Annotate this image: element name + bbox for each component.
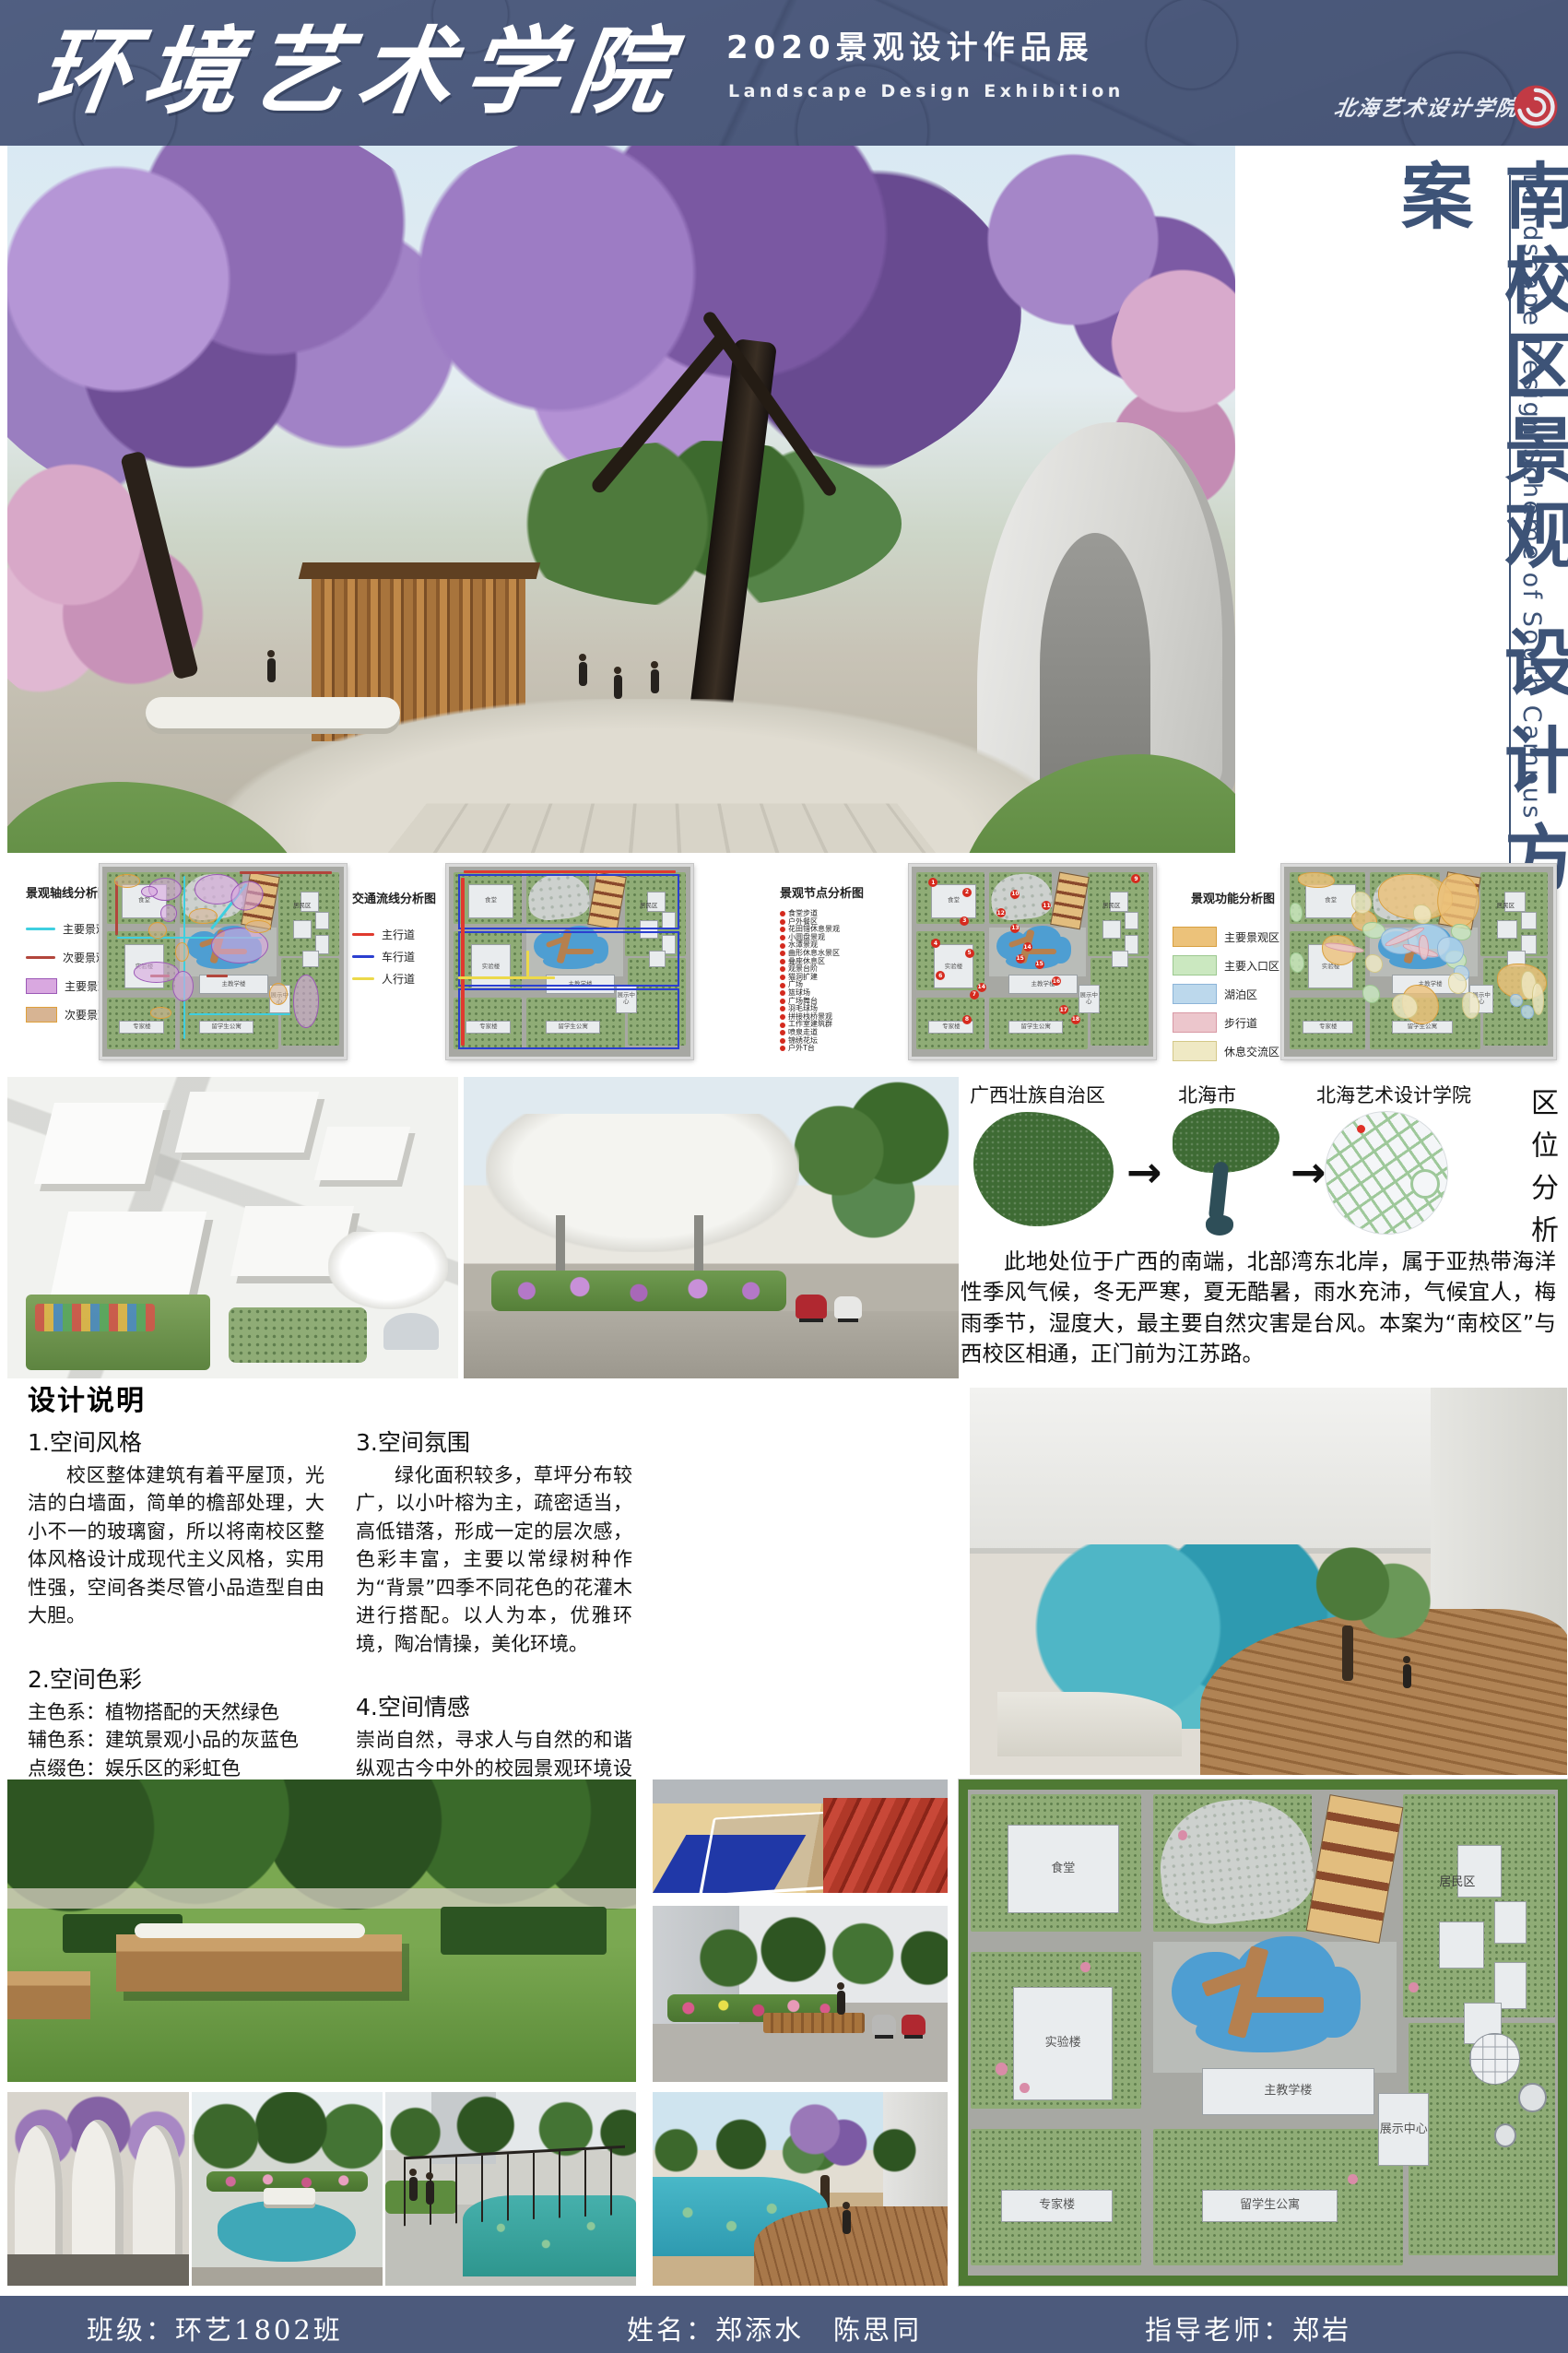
walkway-zone [1419, 935, 1429, 960]
garden-pond-render [192, 2092, 383, 2286]
footer-class: 班级：环艺1802班 [87, 2309, 343, 2347]
building-main_teaching: 主教学楼 [1202, 2068, 1374, 2115]
exhibition-title-en: Landscape Design Exhibition [728, 81, 1125, 101]
legend-swatch [26, 1007, 57, 1023]
red-dot-icon [780, 1006, 785, 1011]
pedestrian-route [458, 976, 555, 979]
residential-building [1112, 951, 1128, 967]
legend-label: 休息交流区 [1224, 1044, 1279, 1059]
building-lab: 实验楼 [1013, 1987, 1113, 2100]
footer-names: 姓名：郑添水 陈思同 [627, 2309, 922, 2347]
traffic-diagram-legend: 交通流线分析图 主行道车行道人行道 [352, 889, 454, 993]
legend-label: 车行道 [382, 949, 415, 964]
vehicle-route [458, 988, 679, 1049]
entrance-zone [1362, 985, 1381, 1004]
rest-zone [1413, 905, 1432, 924]
building-exhibition_center: 展示中心 [1079, 985, 1100, 1013]
legend-swatch [1173, 955, 1217, 975]
secondary-node-ellipse [189, 908, 218, 923]
residential-building [1494, 1901, 1527, 1944]
location-step-beihai-label: 北海市 [1178, 1081, 1236, 1108]
red-dot-icon [780, 983, 785, 988]
lake-zone [1510, 994, 1523, 1007]
red-dot-icon [780, 959, 785, 964]
traffic-analysis-map: 食堂实验楼主教学楼专家楼留学生公寓展示中心居民区 [446, 864, 693, 1059]
red-dot-icon [780, 919, 785, 925]
green-block [1088, 872, 1149, 956]
red-dot-icon [780, 943, 785, 949]
green-block [1403, 1794, 1555, 2017]
legend-swatch [26, 928, 55, 930]
function-analysis-map: 食堂实验楼主教学楼专家楼留学生公寓展示中心居民区 [1281, 864, 1556, 1059]
building-main_teaching: 主教学楼 [199, 975, 268, 994]
main-landscape-zone [1298, 872, 1335, 887]
legend-swatch [352, 955, 374, 958]
legend-swatch [352, 933, 374, 936]
main-route [464, 870, 677, 873]
water-body [1006, 952, 1059, 970]
flower-accent [1020, 2083, 1030, 2093]
legend-swatch [26, 978, 57, 994]
flower-accent [1409, 1982, 1419, 1992]
canopy-street-render [464, 1077, 959, 1378]
node-dot: 14 [977, 983, 986, 992]
vehicle-route [458, 874, 679, 929]
node-list-item: 户外T台 [780, 1045, 904, 1053]
location-analysis-vertical-title: 区位分析 [1521, 1088, 1562, 1258]
red-dot-icon [780, 966, 785, 972]
header-banner: 环境艺术学院 2020景观设计作品展 Landscape Design Exhi… [0, 0, 1568, 146]
residential-building [1125, 912, 1138, 928]
aerial-axon-render [7, 1077, 458, 1378]
basketball-courts [1050, 872, 1090, 930]
building-canteen: 食堂 [1305, 884, 1356, 918]
building-exhibition_center: 展示中心 [1378, 2093, 1429, 2166]
nodes-diagram-legend: 景观节点分析图 食堂步道户外餐区花田错休息景观小圆盘景观水潭景观曲形休息水景区叠… [780, 883, 904, 1053]
building-expert: 专家楼 [1001, 2190, 1113, 2222]
residential-building [315, 912, 329, 928]
legend-item: 主要景观区 [1173, 927, 1283, 947]
courtyard-pool-render [970, 1388, 1567, 1775]
poster-root: 环境艺术学院 2020景观设计作品展 Landscape Design Exhi… [0, 0, 1568, 2353]
deck-pool-render [653, 2092, 948, 2286]
footer-bar: 班级：环艺1802班 姓名：郑添水 陈思同 指导老师：郑岩 [0, 2296, 1568, 2353]
school-logo-seal-icon [1512, 83, 1560, 131]
deck-path [1028, 949, 1056, 954]
exhibition-title-zh: 2020景观设计作品展 [726, 22, 1094, 67]
node-label: 户外T台 [788, 1045, 815, 1053]
school-name-calligraphy: 环境艺术学院 [29, 0, 731, 132]
nodes-analysis-map: 食堂实验楼主教学楼专家楼留学生公寓展示中心居民区1234567891011121… [909, 864, 1156, 1059]
red-dot-icon [780, 951, 785, 956]
red-dot-icon [780, 1030, 785, 1035]
rest-zone [1448, 973, 1467, 994]
school-logo-text: 北海艺术设计学院 [1332, 90, 1513, 122]
lake-zone [1521, 1005, 1534, 1018]
green-block [1480, 872, 1548, 956]
building-expert: 专家楼 [119, 1021, 164, 1034]
basketball-courts [1306, 1794, 1404, 1944]
person-figure [409, 2177, 418, 2201]
red-dot-icon [780, 975, 785, 980]
fenced-pool-render [385, 2092, 636, 2286]
primary-node-ellipse [160, 905, 177, 921]
node-dot: 7 [970, 990, 979, 999]
legend-swatch [1173, 927, 1217, 947]
red-dot-icon [780, 1014, 785, 1020]
red-dot-icon [780, 935, 785, 940]
note-body: 校区整体建筑有着平屋顶，光洁的白墙面，简单的檐部处理，大小不一的玻璃窗，所以将南… [28, 1461, 324, 1630]
building-intl_dorm: 留学生公寓 [1008, 1021, 1064, 1034]
red-dot-icon [780, 1038, 785, 1044]
entrance-zone [1290, 903, 1303, 922]
rest-zone [1365, 954, 1384, 974]
residential-building [302, 951, 319, 967]
primary-axis-line [189, 1013, 290, 1015]
map-marker-icon [1357, 1125, 1365, 1133]
node-dot: 5 [965, 949, 974, 958]
legend-label: 人行道 [382, 971, 415, 987]
diagram-title: 交通流线分析图 [352, 889, 454, 906]
residential-label: 居民区 [1439, 1865, 1554, 1896]
secondary-axis-line [240, 871, 332, 874]
rest-zone [1462, 992, 1480, 1019]
roundabout [1494, 2123, 1516, 2147]
node-dot: 14 [1023, 942, 1032, 952]
axis-analysis-map: 食堂实验楼主教学楼专家楼留学生公寓展示中心居民区 [100, 864, 347, 1059]
node-dot: 15 [1035, 960, 1044, 969]
person-figure [579, 662, 587, 686]
note-heading: 1.空间风格 [28, 1425, 324, 1458]
arch-pavilion-render [7, 2092, 189, 2286]
residential-building [1439, 1921, 1483, 1969]
arrow-right-icon: → [1291, 1151, 1326, 1193]
building-intl_dorm: 留学生公寓 [1202, 2190, 1338, 2222]
legend-item: 步行道 [1173, 1012, 1283, 1033]
person-figure [426, 2181, 434, 2205]
person-figure [267, 658, 276, 682]
legend-item: 湖泊区 [1173, 984, 1283, 1004]
secondary-node-ellipse [175, 942, 189, 962]
legend-label: 湖泊区 [1224, 987, 1257, 1002]
water-body [1196, 2007, 1329, 2052]
legend-item: 主要入口区 [1173, 955, 1283, 975]
building-canteen: 食堂 [1008, 1825, 1119, 1912]
flower-accent [1080, 1962, 1091, 1972]
residential-label: 居民区 [293, 899, 339, 910]
main-route [461, 878, 465, 1045]
lawn-terrace-render [7, 1780, 636, 2082]
primary-node-ellipse [293, 975, 319, 1028]
secondary-node-ellipse [114, 874, 140, 887]
title-divider-rule [1509, 175, 1511, 974]
beihai-city-silhouette [1169, 1108, 1289, 1247]
residential-label: 居民区 [1102, 899, 1149, 910]
legend-item: 主行道 [352, 927, 454, 942]
poster-title-english-vertical: Landscape Design Scheme of South Campus [1517, 173, 1546, 985]
red-dot-icon [780, 1023, 785, 1028]
diagram-title: 景观功能分析图 [1191, 889, 1283, 906]
building-main_teaching: 主教学楼 [1008, 975, 1078, 994]
perimeter-planting [959, 1790, 968, 2276]
primary-node-ellipse [141, 886, 158, 897]
green-block [278, 872, 339, 956]
note-heading: 3.空间氛围 [356, 1425, 632, 1458]
secondary-node-ellipse [148, 922, 167, 939]
person-figure [1403, 1664, 1411, 1688]
master-plan: 食堂实验楼主教学楼专家楼留学生公寓展示中心居民区 [959, 1780, 1567, 2286]
primary-node-ellipse [172, 971, 194, 1001]
legend-item: 休息交流区 [1173, 1041, 1283, 1061]
arrow-right-icon: → [1126, 1151, 1162, 1193]
design-notes-column-1: 1.空间风格 校区整体建筑有着平屋顶，光洁的白墙面，简单的檐部处理，大小不一的玻… [28, 1425, 324, 1814]
diagram-title: 景观节点分析图 [780, 883, 904, 901]
person-figure [614, 675, 622, 699]
roundabout [1518, 2083, 1546, 2111]
rest-zone [1351, 892, 1372, 915]
secondary-node-ellipse [150, 1007, 171, 1018]
residential-label: 居民区 [1497, 899, 1548, 910]
legend-item: 人行道 [352, 971, 454, 987]
primary-node-ellipse [134, 962, 179, 983]
function-diagram-legend: 景观功能分析图 主要景观区主要入口区湖泊区步行道休息交流区 [1173, 889, 1283, 1070]
legend-label: 步行道 [1224, 1015, 1257, 1031]
node-dot: 8 [962, 1015, 972, 1024]
legend-swatch [352, 977, 374, 980]
design-notes-title: 设计说明 [28, 1378, 146, 1418]
legend-swatch [1173, 984, 1217, 1004]
guangxi-province-silhouette [973, 1112, 1114, 1226]
legend-label: 主行道 [382, 927, 415, 942]
red-dot-icon [780, 1046, 785, 1051]
hero-render-campus-plaza [7, 146, 1235, 853]
node-dot: 12 [996, 908, 1006, 917]
legend-swatch [1173, 1041, 1217, 1061]
basketball-court-render [653, 1780, 948, 1893]
note-heading: 2.空间色彩 [28, 1661, 324, 1695]
person-figure [843, 2210, 851, 2234]
location-description: 此地处位于广西的南端，北部湾东北岸，属于亚热带海洋性季风气候，冬无严寒，夏无酷暑… [961, 1247, 1556, 1369]
red-dot-icon [780, 911, 785, 916]
red-dot-icon [780, 999, 785, 1004]
red-dot-icon [780, 927, 785, 932]
building-intl_dorm: 留学生公寓 [199, 1021, 254, 1034]
node-dot: 15 [1016, 954, 1025, 964]
building-expert: 专家楼 [1303, 1021, 1353, 1034]
legend-item: 车行道 [352, 949, 454, 964]
secondary-axis-line [206, 975, 229, 976]
pedestrian-route [526, 951, 530, 977]
person-figure [651, 669, 659, 693]
legend-swatch [26, 956, 55, 959]
flower-accent [1178, 1830, 1188, 1840]
note-body: 绿化面积较多，草坪分布较广，以小叶榕为主，疏密适当，高低错落，形成一定的层次感，… [356, 1461, 632, 1658]
location-step-college-label: 北海艺术设计学院 [1316, 1081, 1471, 1108]
location-step-guangxi-label: 广西壮族自治区 [970, 1081, 1105, 1108]
person-figure [837, 1991, 845, 2015]
secondary-axis-line [115, 881, 118, 935]
residential-building [293, 920, 312, 940]
red-dot-icon [780, 990, 785, 996]
college-road-map [1326, 1112, 1447, 1234]
legend-label: 主要入口区 [1224, 958, 1279, 974]
perimeter-planting [1558, 1790, 1567, 2276]
geodesic-dome [1469, 2033, 1520, 2086]
node-dot: 2 [962, 888, 972, 897]
residential-building [1102, 920, 1121, 940]
note-body: 主色系：植物搭配的天然绿色 辅色系：建筑景观小品的灰蓝色 点缀色：娱乐区的彩虹色 [28, 1698, 324, 1782]
perimeter-planting [959, 2276, 1567, 2286]
rest-zone [1392, 994, 1418, 1019]
residential-building [1497, 920, 1517, 940]
flower-accent [996, 2063, 1008, 2075]
node-dot: 3 [960, 916, 969, 926]
residential-building [1521, 912, 1537, 928]
legend-swatch [1173, 1012, 1217, 1033]
deck-path [1251, 1997, 1324, 2012]
secondary-node-ellipse [245, 920, 271, 933]
note-heading: 4.空间情感 [356, 1689, 632, 1722]
legend-label: 主要景观区 [1224, 929, 1279, 945]
perimeter-planting [959, 1780, 1567, 1790]
lake-zone [1437, 937, 1463, 964]
flower-street-render [653, 1906, 948, 2082]
footer-advisor: 指导老师：郑岩 [1145, 2309, 1351, 2347]
node-dot: 18 [1071, 1015, 1080, 1024]
